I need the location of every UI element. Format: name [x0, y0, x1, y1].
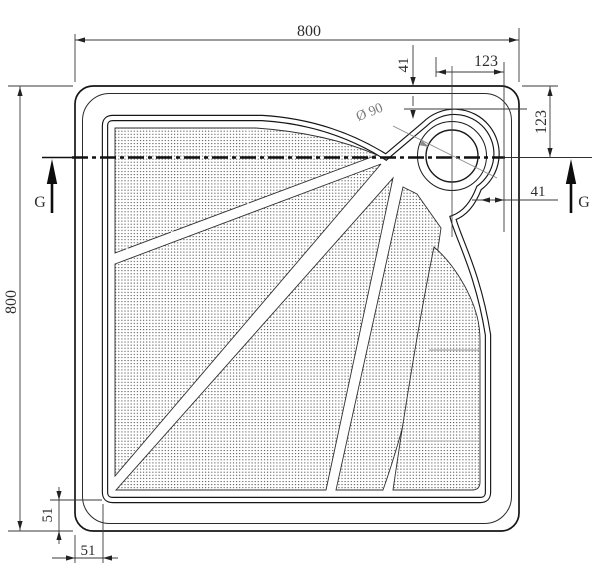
- dim-label-bottom-floor-margin: 51: [81, 543, 96, 559]
- arrowhead: [66, 555, 75, 560]
- dim-label-right-drain-offset: 123: [533, 110, 550, 134]
- section-arrow-head: [47, 159, 57, 184]
- dim-label-left-height: 800: [3, 290, 20, 314]
- arrowhead: [547, 87, 552, 96]
- drawing-sheet: 800 800 41 123 123 41 51 51 Ø 90 G G: [0, 0, 600, 573]
- dim-label-top-width: 800: [297, 23, 321, 40]
- arrowhead: [509, 37, 518, 42]
- section-marker-label-left: G: [34, 194, 46, 211]
- shower-tray-technical-drawing: 800 800 41 123 123 41 51 51 Ø 90 G G: [0, 0, 600, 573]
- dim-label-right-drain-gap: 41: [531, 184, 546, 200]
- arrowhead: [547, 148, 552, 157]
- arrowhead: [56, 531, 61, 540]
- arrowhead: [56, 491, 61, 500]
- arrowhead: [410, 77, 415, 86]
- dim-label-top-drain-gap: 41: [396, 58, 412, 73]
- section-arrow-head: [566, 159, 576, 184]
- arrowhead: [494, 69, 503, 74]
- section-marker-label-right: G: [578, 194, 590, 211]
- section-marker-left: [47, 159, 57, 213]
- section-marker-right: [566, 159, 576, 213]
- arrowhead: [437, 69, 446, 74]
- arrowhead: [103, 555, 112, 560]
- arrowhead: [17, 521, 22, 530]
- dim-label-top-drain-offset: 123: [474, 53, 498, 70]
- arrowhead: [17, 87, 22, 96]
- dim-label-left-floor-margin: 51: [40, 508, 56, 523]
- arrowhead: [76, 37, 85, 42]
